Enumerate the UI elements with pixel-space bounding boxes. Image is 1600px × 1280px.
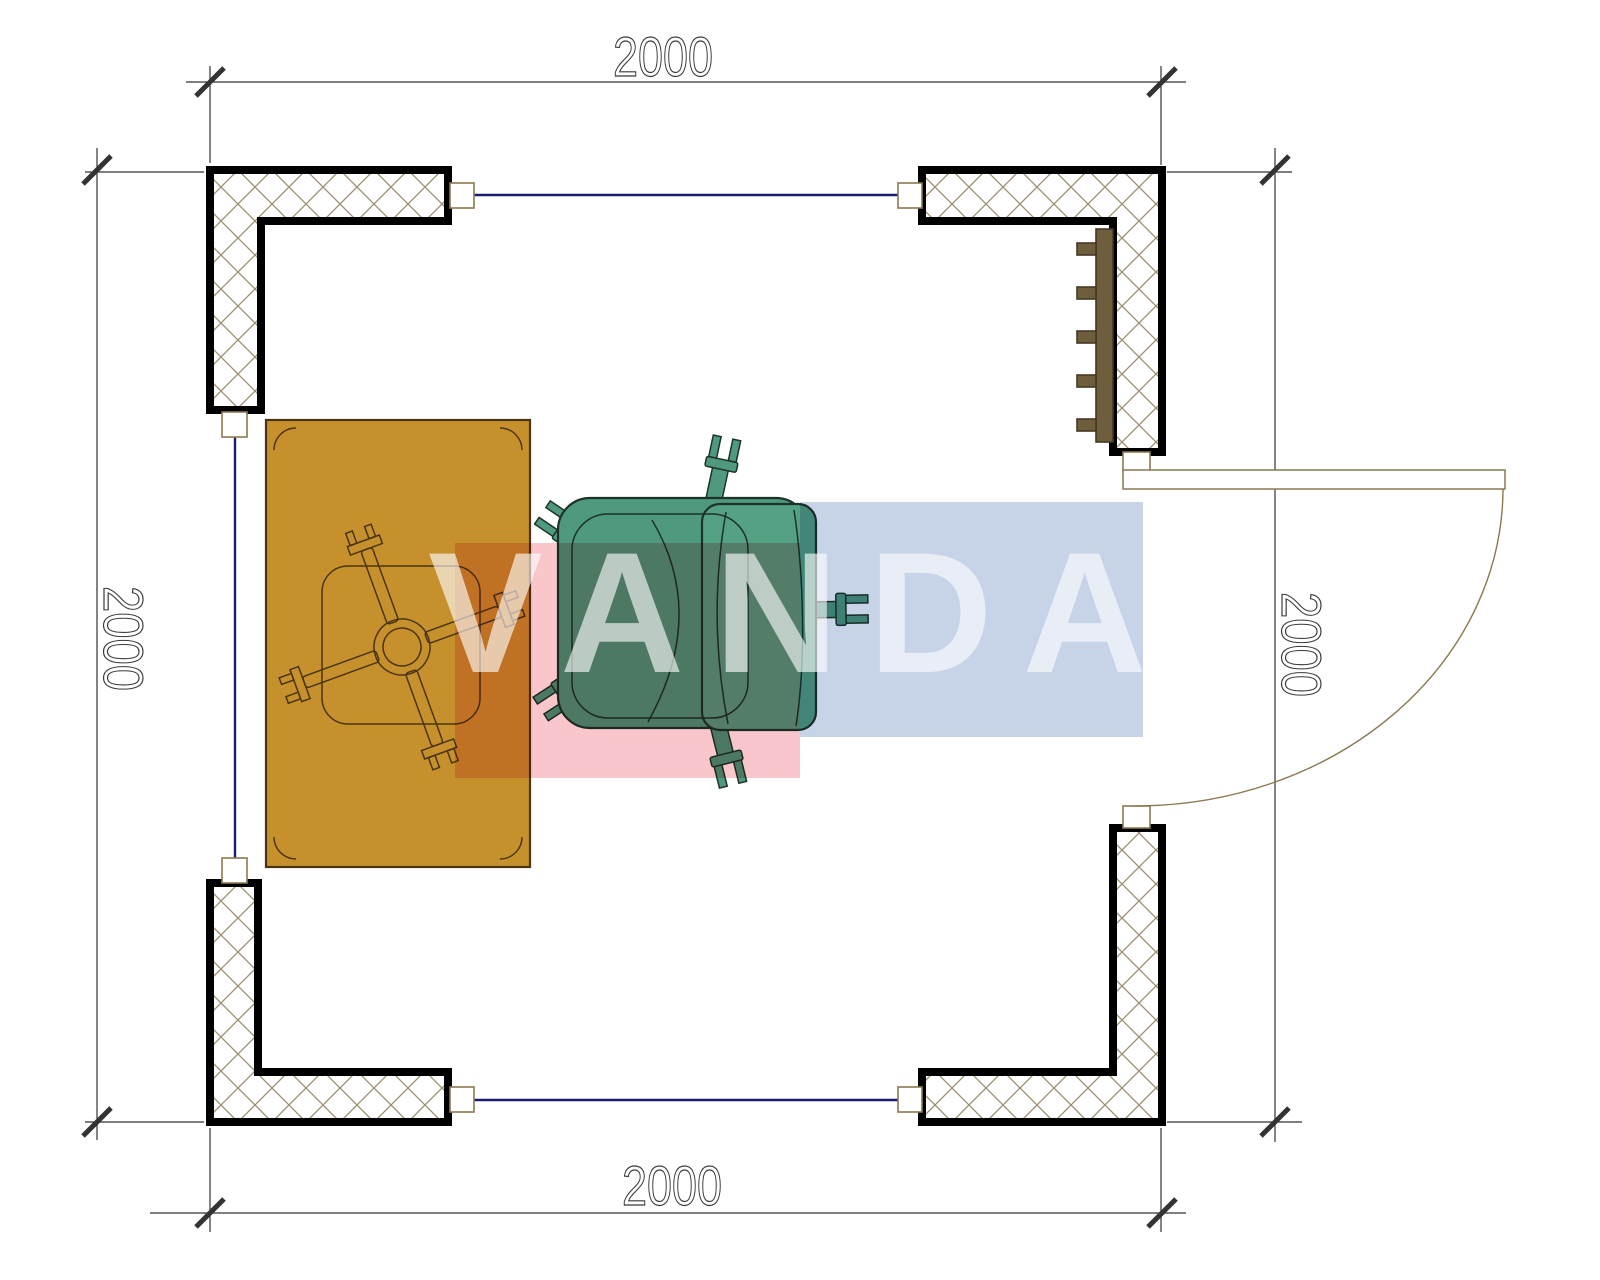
dimension-right-label: 2000	[1270, 592, 1333, 697]
watermark: VANDA	[428, 502, 1177, 778]
dimension-left: 2000	[83, 148, 204, 1140]
door-frame-top	[1123, 452, 1150, 472]
dimension-bottom-label: 2000	[622, 1154, 722, 1217]
dimension-top-label: 2000	[613, 25, 713, 88]
radiator-fin	[1077, 375, 1096, 387]
connector	[450, 183, 474, 208]
floor-plan-page: 2000 2000 2000 2000	[0, 0, 1600, 1280]
dimension-left-label: 2000	[92, 586, 155, 691]
connector	[450, 1087, 474, 1112]
corner-wall-top-left	[210, 170, 448, 410]
radiator-fin	[1077, 243, 1096, 255]
dimension-top: 2000	[186, 25, 1186, 165]
corner-wall-top-right	[922, 170, 1162, 452]
watermark-text: VANDA	[428, 517, 1177, 709]
connector	[222, 412, 247, 437]
corner-wall-bottom-left	[210, 883, 448, 1122]
door-frame-bottom	[1123, 806, 1150, 828]
connector	[898, 1087, 922, 1112]
radiator-fin	[1077, 331, 1096, 343]
corner-wall-bottom-right	[922, 828, 1162, 1122]
door-leaf	[1123, 470, 1505, 489]
radiator	[1077, 229, 1113, 442]
floor-plan-drawing: 2000 2000 2000 2000	[0, 0, 1600, 1280]
dimension-bottom: 2000	[150, 1128, 1186, 1232]
connector	[898, 183, 922, 208]
dimension-right: 2000	[1167, 148, 1333, 1142]
radiator-fin	[1077, 287, 1096, 299]
connector	[222, 858, 247, 883]
radiator-body	[1096, 229, 1113, 442]
radiator-fin	[1077, 419, 1096, 431]
